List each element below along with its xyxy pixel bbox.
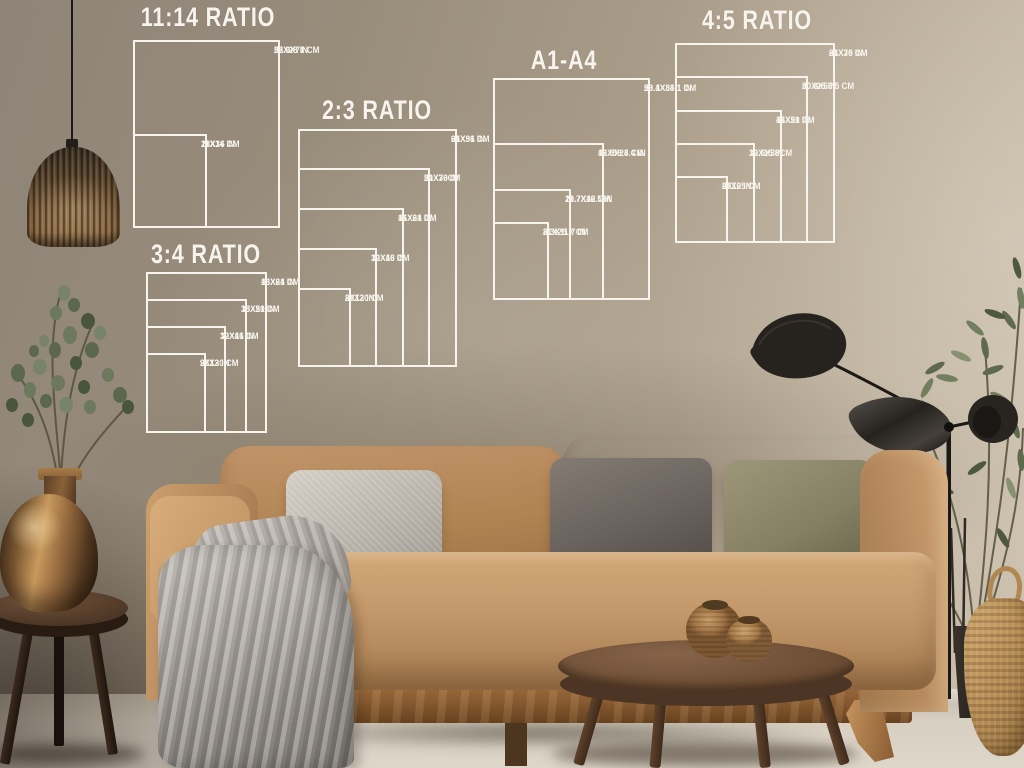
eucalyptus-plant-left (0, 255, 170, 505)
size-box-ratio-11-14-11x14-in: 11X14 IN28X36 CM (133, 134, 207, 228)
throw-blanket (158, 545, 354, 768)
size-group-title-ratio-4-5: 4:5 RATIO (702, 5, 812, 36)
decor-vase-large-opening (702, 600, 728, 610)
coffee-table-shadow (552, 742, 858, 766)
stool-leg (54, 630, 64, 746)
living-room-size-guide-mockup: 11:14 RATIO22X28 IN55.9X71 CM11X14 IN28X… (0, 0, 1024, 768)
size-box-a1-a4-8.3x11.7-in: 8.3X11.7 IN21X29.7 CM (493, 222, 549, 300)
size-box-ratio-4-5-8x10-in: 8X10 IN20X25 CM (675, 176, 728, 243)
stool-shadow (0, 744, 144, 764)
decor-vase-small-opening (738, 616, 760, 624)
sofa-leg (505, 722, 527, 766)
floor-lamp-shade-large (750, 313, 846, 378)
size-group-title-a1-a4: A1-A4 (531, 45, 597, 76)
pendant-lamp-cord (71, 0, 73, 150)
size-group-title-ratio-11-14: 11:14 RATIO (141, 2, 275, 33)
size-box-ratio-2-3-8x12-in: 8X12 IN20X30 CM (298, 288, 351, 367)
size-group-title-ratio-2-3: 2:3 RATIO (322, 95, 432, 126)
decor-vase-small (726, 618, 772, 662)
copper-vase (0, 494, 98, 612)
